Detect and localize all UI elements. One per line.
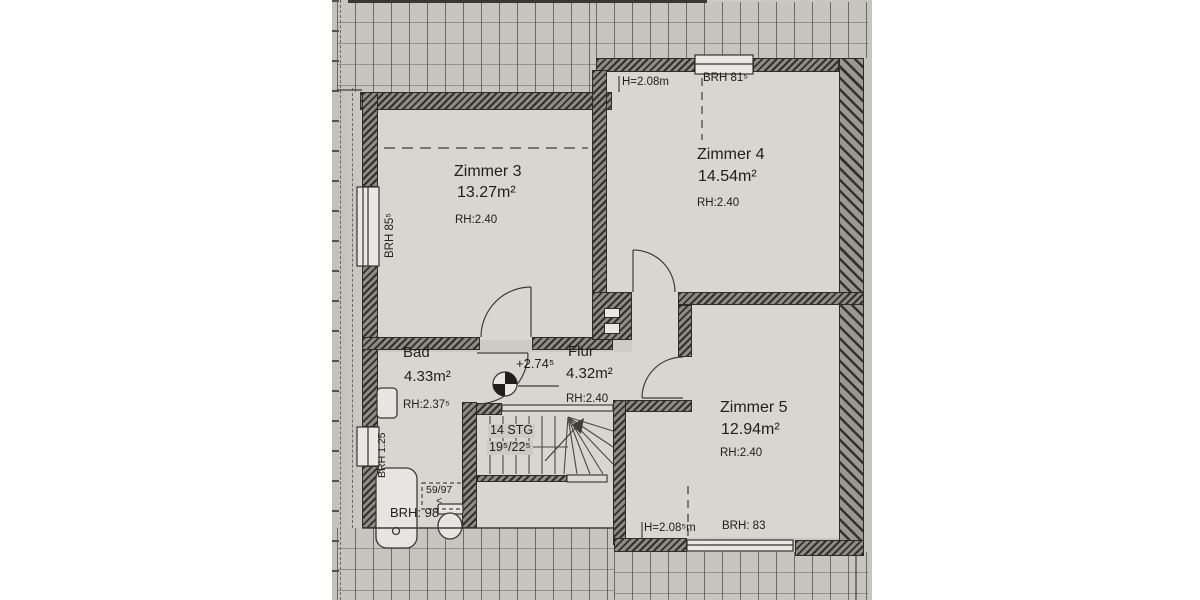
height-label-zimmer4: RH:2.40 [697,197,739,210]
room-label-zimmer3: Zimmer 3 [454,163,522,181]
sill-label-bathtub: BRH: 98 [390,506,439,520]
paper-background: Zimmer 3 13.27m² RH:2.40 Zimmer 4 14.54m… [332,0,872,600]
room-label-zimmer5: Zimmer 5 [720,399,788,417]
stair-rail-bottom [567,475,607,482]
stair-direction-arrow [545,418,584,461]
level-marker [493,372,559,396]
fixture-mark-label: < [436,496,442,508]
area-label-zimmer5: 12.94m² [721,421,780,439]
sill-label-zimmer4: BRH 81⁵ [703,72,748,85]
sill-label-zimmer5: BRH: 83 [722,520,765,533]
window-zimmer3-left [357,187,379,266]
door-zimmer4 [633,250,675,292]
door-zimmer3 [481,287,531,337]
sill-label-bad-window: BRH 1.25 [377,432,389,478]
room-label-bad: Bad [403,345,430,362]
door-zimmer5 [642,357,683,398]
floor-plan-canvas: Zimmer 3 13.27m² RH:2.40 Zimmer 4 14.54m… [0,0,1200,600]
height-label-bad: RH:2.37⁵ [403,399,450,412]
window-zimmer5-bottom [687,540,793,551]
height-label-zimmer3: RH:2.40 [455,214,497,227]
room-label-zimmer4: Zimmer 4 [697,146,765,164]
toilet-bowl [438,513,462,539]
room-label-flur: Flur [568,344,594,361]
area-label-zimmer4: 14.54m² [698,168,757,186]
level-value-label: +2.74⁵ [516,357,554,371]
area-label-bad: 4.33m² [404,369,451,386]
area-label-flur: 4.32m² [566,366,613,383]
height-label-flur: RH:2.40 [566,393,608,406]
stair-rail-top [502,405,613,411]
height-label-zimmer5: RH:2.40 [720,447,762,460]
washbasin [377,388,397,418]
stair-rise-run-label: 19⁵/22⁵ [487,441,533,455]
clear-height-label-zimmer4: H=2.08m [622,76,669,89]
area-label-zimmer3: 13.27m² [457,184,516,202]
sill-label-zimmer3-window: BRH 85⁵ [384,213,397,258]
clear-height-label-zimmer5: H=2.08⁵m [644,522,696,535]
stair-steps-label: 14 STG [488,424,535,438]
